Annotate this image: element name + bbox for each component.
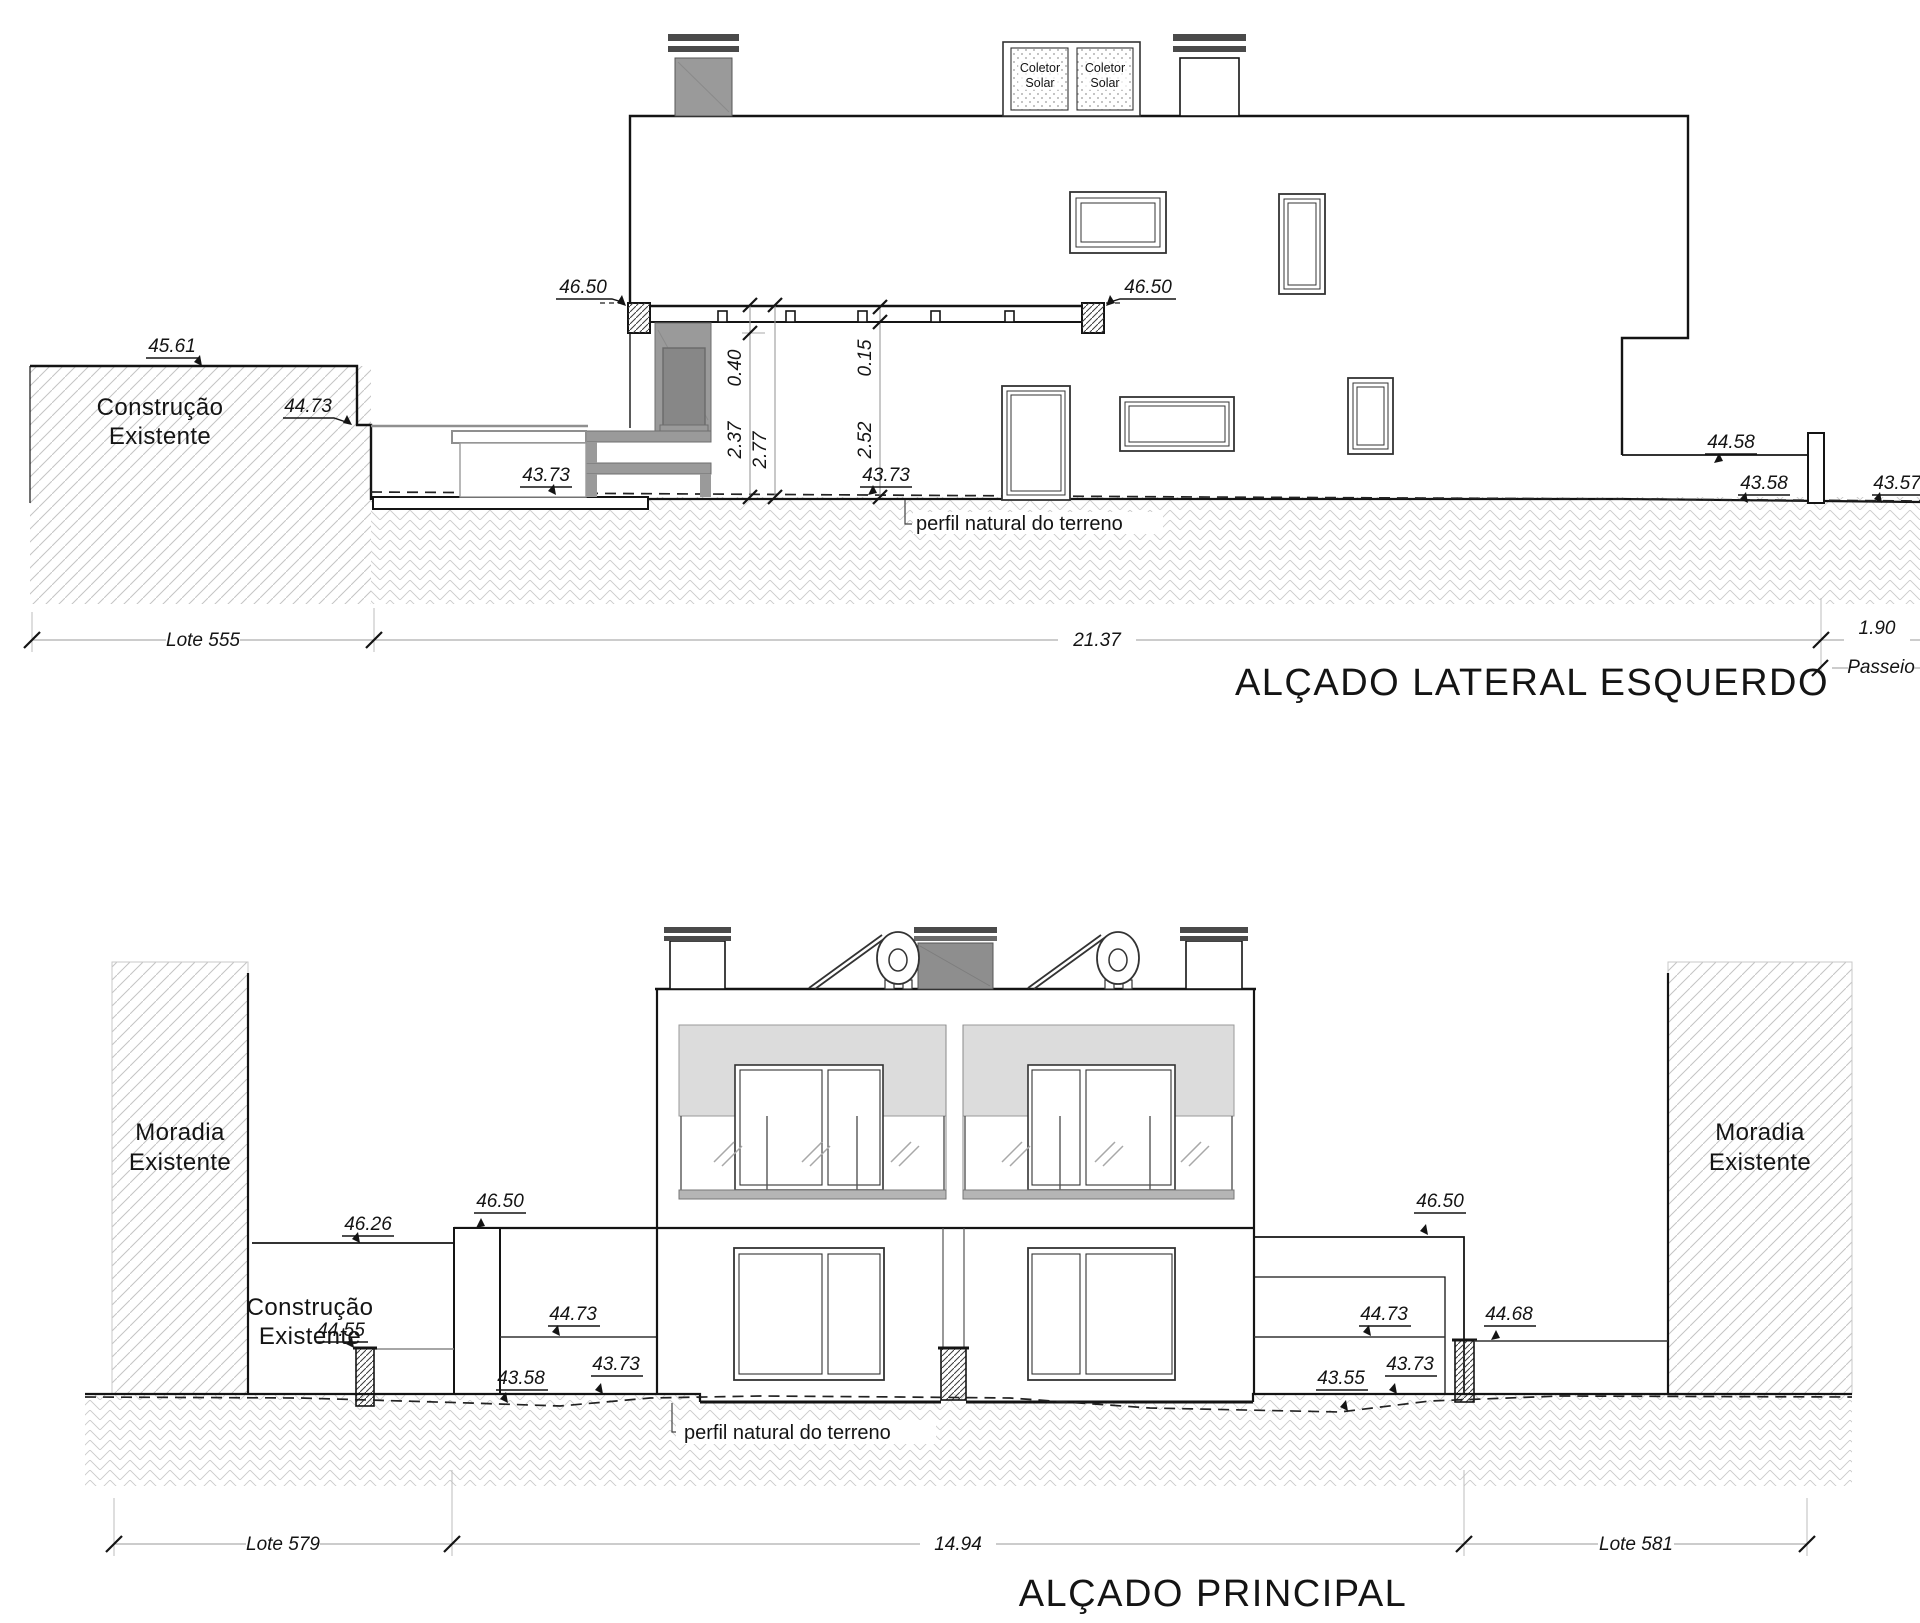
lower-title: ALÇADO PRINCIPAL	[1019, 1573, 1408, 1615]
gf-window-left-unit	[734, 1248, 884, 1380]
svg-text:Moradia: Moradia	[135, 1119, 225, 1146]
svg-text:Existente: Existente	[129, 1149, 231, 1176]
svg-text:43.58: 43.58	[497, 1368, 545, 1389]
lower-elevation: Moradia Existente Moradia Existente Cons…	[85, 927, 1852, 1615]
svg-text:44.58: 44.58	[1707, 432, 1755, 453]
level-43-73-lower-left: 43.73	[591, 1354, 643, 1394]
level-43-73-lower-right: 43.73	[1385, 1354, 1437, 1394]
lot-555-label: Lote 555	[166, 630, 240, 651]
level-44-58: 44.58	[1705, 432, 1757, 463]
window-upper-wide	[1070, 192, 1166, 253]
svg-text:46.50: 46.50	[1124, 277, 1172, 298]
svg-text:Existente: Existente	[1709, 1149, 1811, 1176]
level-46-50-lower-left: 46.50	[474, 1191, 526, 1228]
solar-collector-label-2b: Solar	[1090, 76, 1119, 90]
neighbour-house-right: Moradia Existente	[1668, 962, 1852, 1394]
chimney-right-upper	[1173, 34, 1246, 116]
level-46-26: 46.26	[342, 1214, 394, 1243]
svg-text:44.68: 44.68	[1485, 1304, 1533, 1325]
window-lower-tall	[1348, 378, 1393, 454]
svg-text:43.73: 43.73	[522, 465, 570, 486]
right-lateral-wall	[1254, 1237, 1668, 1402]
elevations-drawing: Construção Existente Coletor	[0, 0, 1920, 1623]
svg-text:46.50: 46.50	[476, 1191, 524, 1212]
svg-text:44.73: 44.73	[284, 396, 332, 417]
dim-2-37: 2.37	[725, 420, 746, 459]
dim-2-52: 2.52	[855, 421, 876, 459]
existing-construction-label-line2: Existente	[109, 423, 211, 450]
lot-579-label: Lote 579	[246, 1534, 320, 1555]
level-44-73-lower-left: 44.73	[548, 1304, 600, 1336]
svg-text:44.73: 44.73	[549, 1304, 597, 1325]
ground-section-lower	[85, 1394, 1852, 1486]
door-window-lower	[1002, 386, 1070, 500]
upper-title: ALÇADO LATERAL ESQUERDO	[1235, 662, 1829, 704]
svg-text:Construção: Construção	[247, 1294, 374, 1321]
solar-collector-label-2a: Coletor	[1085, 61, 1125, 75]
svg-text:44.73: 44.73	[1360, 1304, 1408, 1325]
architectural-sheet: Construção Existente Coletor	[0, 0, 1920, 1623]
chimney-left-lower	[664, 927, 731, 989]
svg-text:43.73: 43.73	[1386, 1354, 1434, 1375]
solar-collector-label-1a: Coletor	[1020, 61, 1060, 75]
level-44-73-lower-right: 44.73	[1359, 1304, 1411, 1336]
dim-2-77: 2.77	[750, 430, 771, 469]
passeio-label: Passeio	[1847, 657, 1915, 678]
solar-collector-label-1b: Solar	[1025, 76, 1054, 90]
level-46-50-right: 46.50	[1106, 277, 1176, 306]
dim-0-40: 0.40	[725, 349, 746, 386]
level-44-68: 44.68	[1484, 1304, 1536, 1340]
upper-door-left-unit	[735, 1065, 883, 1190]
roof-box	[914, 927, 997, 989]
window-lower-wide	[1120, 397, 1234, 451]
upper-elevation: Construção Existente Coletor	[24, 34, 1920, 704]
svg-text:perfil natural do terreno: perfil natural do terreno	[684, 1422, 891, 1444]
level-45-61: 45.61	[146, 336, 202, 366]
svg-text:perfil natural do terreno: perfil natural do terreno	[916, 513, 1123, 535]
svg-text:Moradia: Moradia	[1715, 1119, 1805, 1146]
svg-text:46.26: 46.26	[344, 1214, 392, 1235]
gf-window-right-unit	[1028, 1248, 1175, 1380]
barbecue-structure	[452, 323, 711, 497]
solar-panel-left	[809, 932, 919, 989]
window-upper-tall	[1279, 194, 1325, 294]
svg-text:43.73: 43.73	[862, 465, 910, 486]
chimney-right-lower	[1180, 927, 1248, 989]
svg-text:44.55: 44.55	[317, 1320, 365, 1341]
party-planter	[938, 1228, 969, 1400]
svg-text:43.55: 43.55	[1317, 1368, 1365, 1389]
svg-text:45.61: 45.61	[148, 336, 196, 357]
level-46-50-lower-right: 46.50	[1414, 1191, 1466, 1235]
chimney-left-upper	[668, 34, 739, 116]
lot-581-label: Lote 581	[1599, 1534, 1673, 1555]
svg-text:46.50: 46.50	[1416, 1191, 1464, 1212]
neighbour-house-left: Moradia Existente	[112, 962, 248, 1394]
dim-0-15: 0.15	[855, 339, 876, 376]
dim-14-94: 14.94	[934, 1534, 982, 1555]
level-46-50-left: 46.50	[556, 277, 626, 306]
svg-text:43.73: 43.73	[592, 1354, 640, 1375]
svg-text:46.50: 46.50	[559, 277, 607, 298]
dim-1-90: 1.90	[1859, 618, 1896, 639]
solar-panel-right	[1028, 932, 1139, 989]
dim-21-37: 21.37	[1072, 630, 1122, 651]
existing-construction-label-line1: Construção	[97, 394, 224, 421]
upper-door-right-unit	[1028, 1065, 1175, 1190]
svg-text:43.57: 43.57	[1873, 473, 1920, 494]
svg-text:43.58: 43.58	[1740, 473, 1788, 494]
solar-collectors-upper: Coletor Solar Coletor Solar	[1003, 42, 1140, 116]
